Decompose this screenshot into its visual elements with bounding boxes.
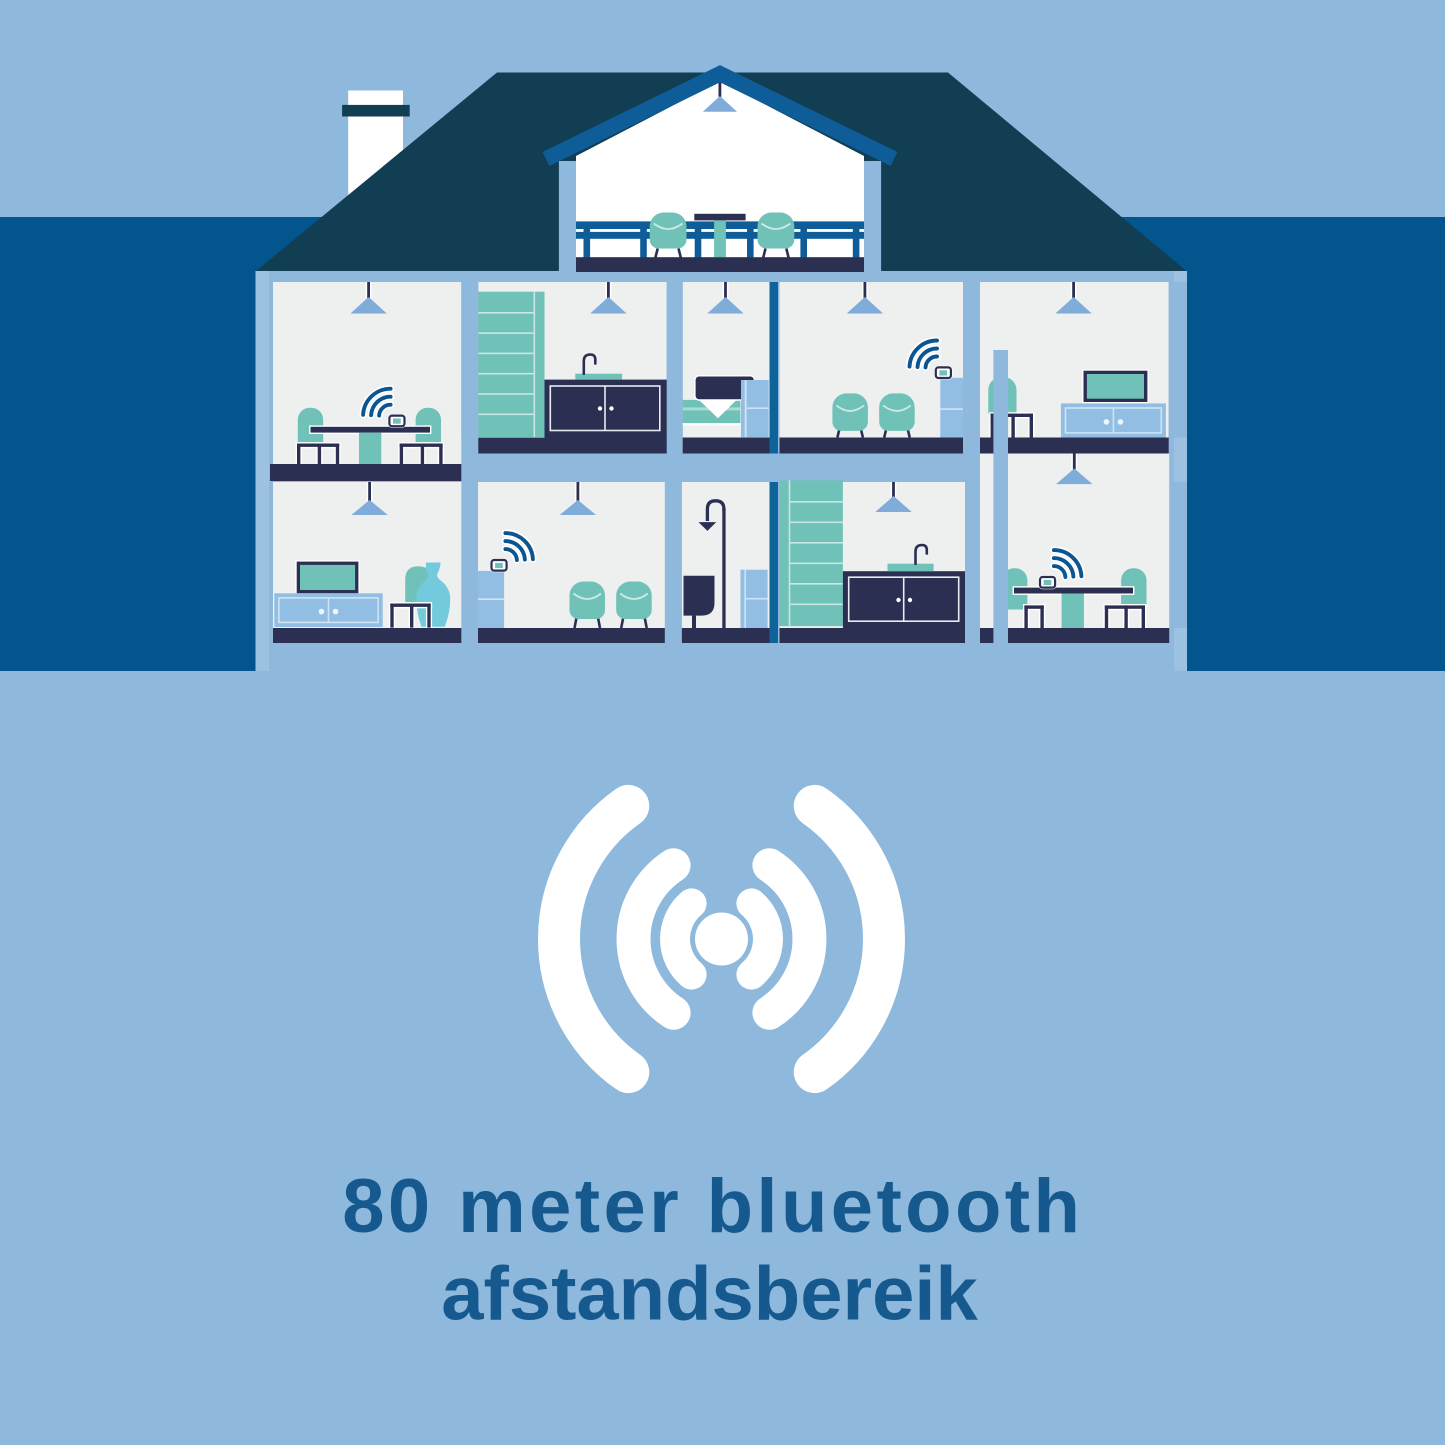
svg-text:afstandsbereik: afstandsbereik: [441, 1252, 978, 1337]
svg-text:80 meter bluetooth: 80 meter bluetooth: [342, 1164, 1083, 1249]
